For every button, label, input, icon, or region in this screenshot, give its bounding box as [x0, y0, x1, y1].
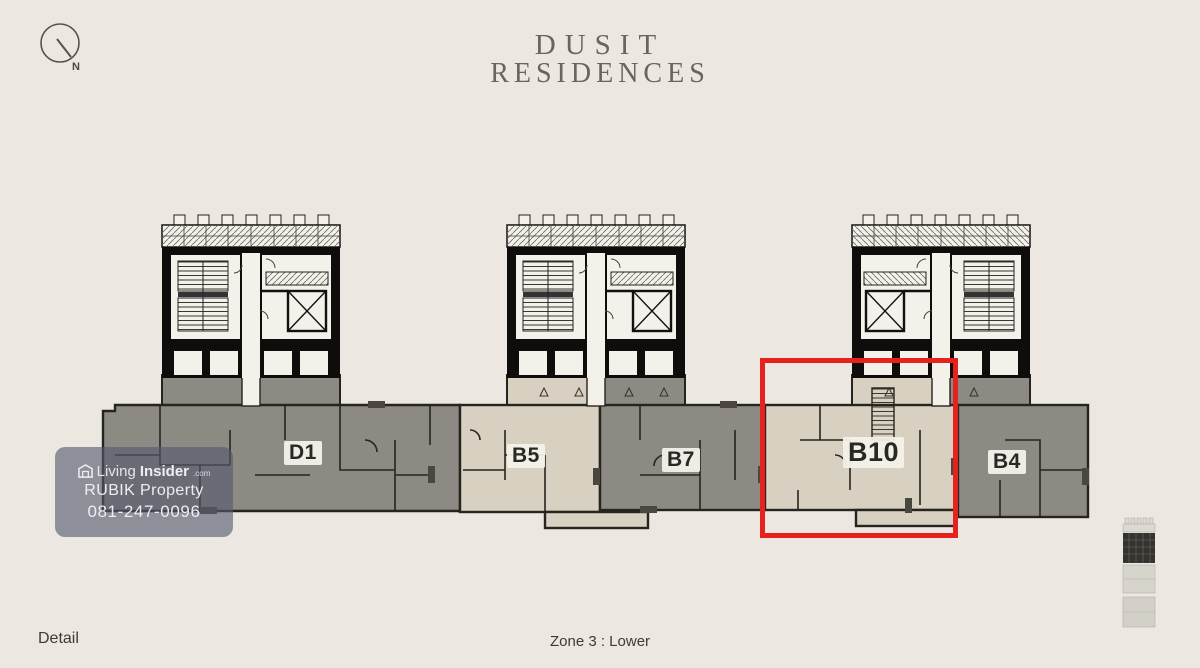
watermark-phone: 081-247-0096	[87, 502, 200, 522]
brand-living: Living	[97, 463, 136, 480]
floor-plan-drawing	[0, 0, 1200, 668]
unit-label-b10: B10	[843, 437, 904, 468]
brand-insider: Insider	[140, 463, 189, 480]
b5-balcony-step	[545, 512, 648, 528]
unit-region-b7-upper	[596, 375, 685, 407]
building-key-icon	[1120, 517, 1166, 629]
floorplan-page: N DUSIT RESIDENCES	[0, 0, 1200, 668]
tower-middle	[507, 215, 685, 378]
livinginsider-logo-icon	[78, 464, 93, 479]
unit-label-b4: B4	[988, 450, 1026, 474]
unit-label-d1: D1	[284, 441, 322, 465]
tower-right	[852, 215, 1030, 378]
tower-left	[162, 215, 340, 378]
watermark-company: RUBIK Property	[84, 482, 203, 500]
unit-label-b5: B5	[507, 444, 545, 468]
brand-tld: .com	[193, 469, 210, 480]
zone-label: Zone 3 : Lower	[0, 633, 1200, 650]
watermark-card: LivingInsider.com RUBIK Property 081-247…	[55, 447, 233, 537]
watermark-brand: LivingInsider.com	[78, 463, 211, 480]
unit-label-b7: B7	[662, 448, 700, 472]
unit-region-b5-upper	[507, 375, 596, 407]
